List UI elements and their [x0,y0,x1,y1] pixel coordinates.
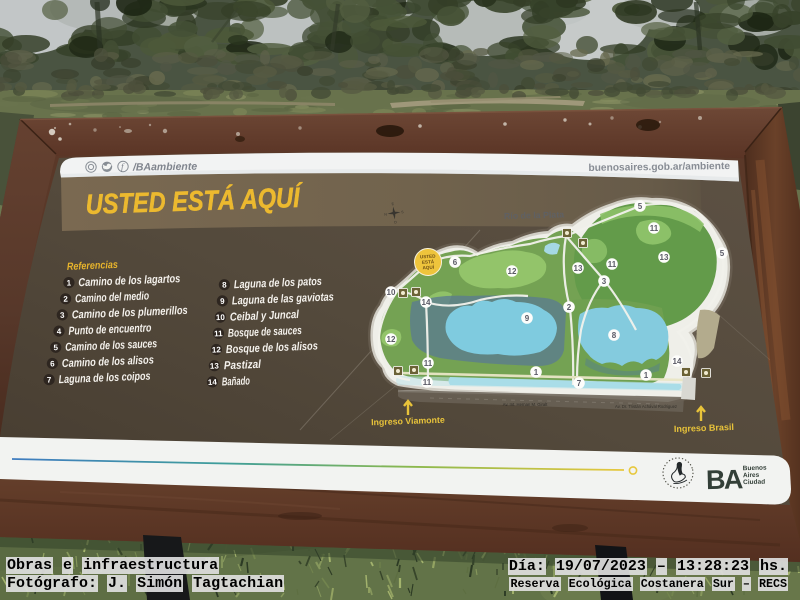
svg-text:Referencias: Referencias [67,259,119,273]
svg-text:buenosaires.gob.ar/ambiente: buenosaires.gob.ar/ambiente [588,161,730,174]
svg-text:12: 12 [212,345,222,354]
svg-text:8: 8 [612,331,617,340]
svg-text:13: 13 [574,264,583,273]
svg-text:11: 11 [423,378,432,387]
svg-text:Ingreso Brasil: Ingreso Brasil [674,422,734,434]
svg-text:11: 11 [214,329,223,338]
svg-text:12: 12 [508,267,517,276]
svg-text:11: 11 [608,260,617,269]
svg-text:1: 1 [534,368,539,377]
svg-text:10: 10 [216,313,226,322]
svg-text:5: 5 [720,249,725,258]
svg-text:13: 13 [660,253,669,262]
svg-text:13: 13 [210,361,220,370]
svg-text:Bañado: Bañado [222,375,250,388]
svg-text:/BAambiente: /BAambiente [132,161,197,174]
svg-text:10: 10 [387,288,396,297]
svg-text:9: 9 [525,314,530,323]
svg-text:7: 7 [577,379,582,388]
svg-text:14: 14 [208,378,218,387]
svg-text:2: 2 [567,303,572,312]
svg-text:Av. Int. Hernan M. Giralt: Av. Int. Hernan M. Giralt [503,402,548,407]
svg-text:Av. Dr. Tristán Achával Rodrig: Av. Dr. Tristán Achával Rodriguez [615,404,677,409]
svg-text:Ciudad: Ciudad [743,479,765,487]
svg-text:14: 14 [422,298,431,307]
svg-text:14: 14 [673,357,682,366]
svg-text:1: 1 [644,371,649,380]
svg-text:11: 11 [650,224,659,233]
svg-text:11: 11 [424,359,433,368]
svg-text:5: 5 [638,202,643,211]
svg-text:Pastizal: Pastizal [224,359,262,373]
svg-text:BA: BA [706,464,743,495]
svg-text:6: 6 [453,258,458,267]
svg-text:12: 12 [387,335,396,344]
svg-text:3: 3 [602,277,607,286]
svg-text:Río de la Plata: Río de la Plata [504,209,564,221]
